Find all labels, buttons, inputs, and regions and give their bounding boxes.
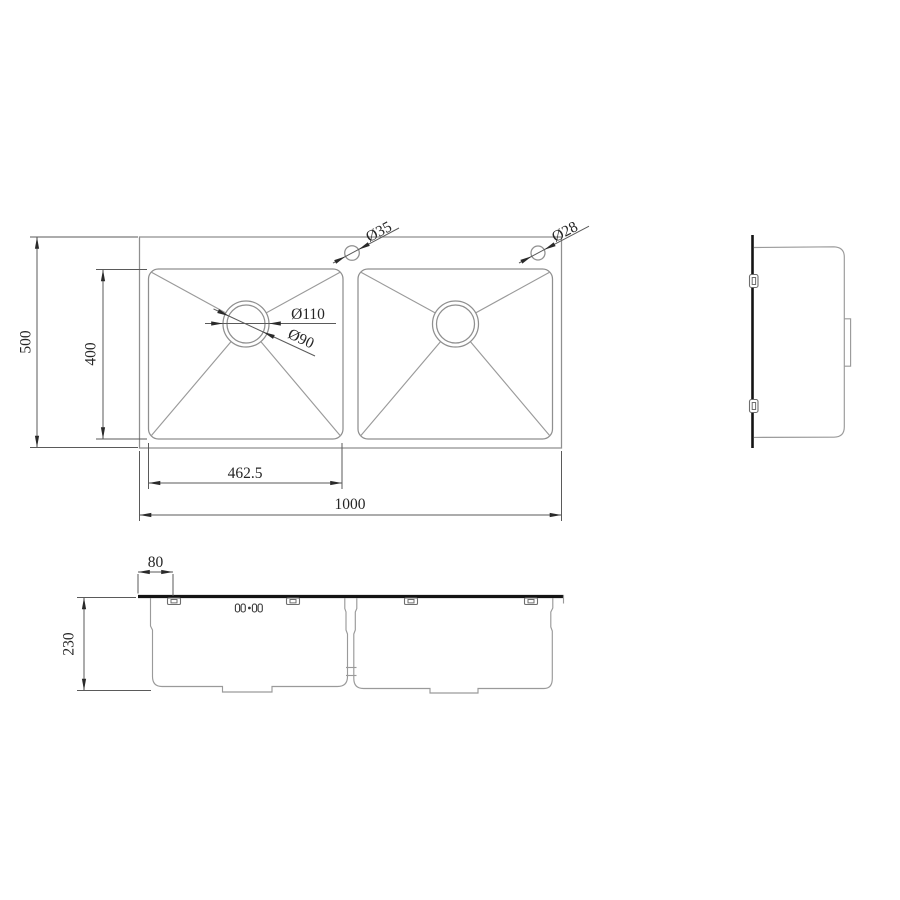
dim-faucet-left: Ø35 <box>333 218 399 263</box>
dim-label-drain-flange: Ø110 <box>291 306 325 323</box>
technical-drawing-canvas: Ø110 Ø90 Ø35 Ø28 500 <box>0 0 900 900</box>
dim-label-bowl-height: 230 <box>61 632 78 656</box>
right-bowl-outline <box>358 269 553 439</box>
mounting-clip <box>287 598 300 605</box>
dim-label-drain-hole: Ø90 <box>285 326 317 353</box>
dim-label-overall-width: 1000 <box>335 496 366 513</box>
side-drain-tab <box>844 319 850 366</box>
top-view: Ø110 Ø90 Ø35 Ø28 500 <box>18 218 590 521</box>
dim-overall-width: 1000 <box>140 451 562 521</box>
front-mounting-clips <box>168 598 538 605</box>
overflow-marking <box>235 604 262 612</box>
front-left-bowl-outline <box>151 598 348 692</box>
mounting-clip <box>405 598 418 605</box>
mounting-clip <box>168 598 181 605</box>
dim-label-overall-depth: 500 <box>18 330 35 354</box>
right-drain <box>433 301 479 347</box>
front-right-bowl-outline <box>354 598 553 693</box>
dim-bowl-width: 462.5 <box>149 443 343 489</box>
dim-label-clip-offset: 80 <box>148 554 164 571</box>
drawing-sheet: Ø110 Ø90 Ø35 Ø28 500 <box>0 0 900 900</box>
dim-label-bowl-width: 462.5 <box>228 465 263 482</box>
mounting-clip <box>525 598 538 605</box>
dim-label-bowl-depth: 400 <box>83 342 100 366</box>
dim-clip-offset: 80 <box>138 554 173 596</box>
dim-bowl-depth: 400 <box>83 270 148 440</box>
side-view <box>750 235 851 448</box>
front-view: 80 230 <box>61 554 564 693</box>
left-bowl-corner-lines <box>151 272 341 436</box>
dim-label-faucet-left: Ø35 <box>363 218 395 246</box>
dim-label-faucet-right: Ø28 <box>549 218 581 246</box>
side-mounting-clip-bottom <box>750 400 759 413</box>
dim-bowl-height: 230 <box>61 598 152 691</box>
side-mounting-clip-top <box>750 275 759 288</box>
dim-overall-depth: 500 <box>18 237 139 448</box>
right-bowl-corner-lines <box>361 272 551 436</box>
dim-faucet-right: Ø28 <box>519 218 589 263</box>
left-bowl-outline <box>149 269 344 439</box>
side-body-outline <box>754 247 844 438</box>
